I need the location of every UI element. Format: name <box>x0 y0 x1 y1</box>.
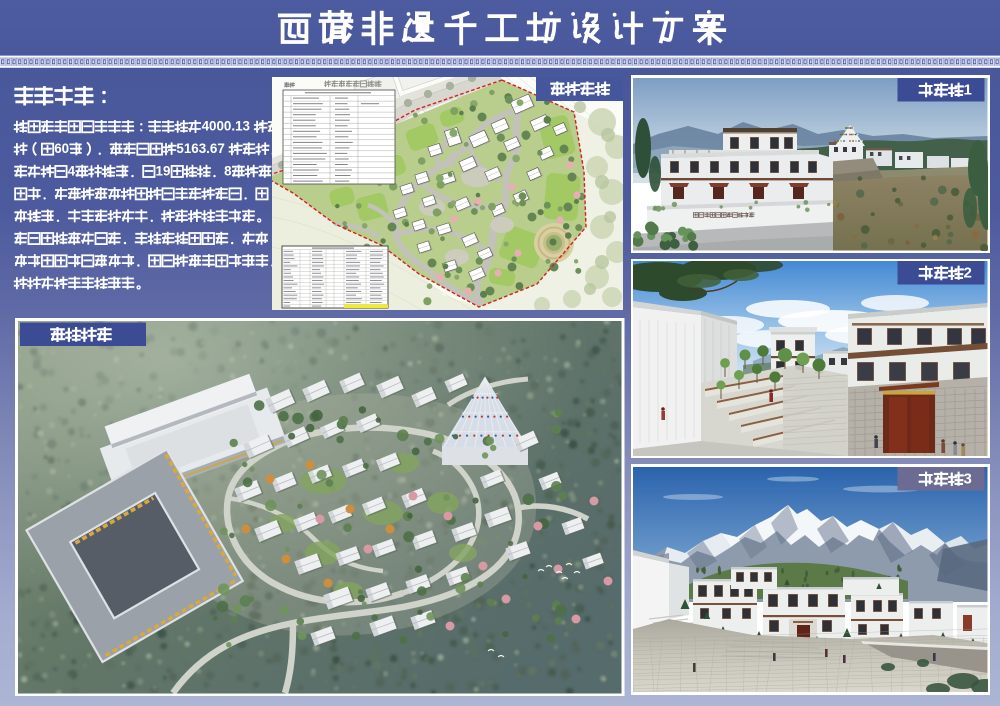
svg-text:5163.67: 5163.67 <box>176 141 224 156</box>
svg-text:60: 60 <box>54 141 69 156</box>
svg-text:2: 2 <box>964 265 972 282</box>
svg-text:19: 19 <box>156 163 171 178</box>
svg-text:8: 8 <box>224 163 232 178</box>
svg-text:4000.13: 4000.13 <box>202 119 250 134</box>
svg-text:4: 4 <box>68 163 76 178</box>
svg-text:1: 1 <box>964 82 972 99</box>
svg-text:3: 3 <box>963 470 971 487</box>
